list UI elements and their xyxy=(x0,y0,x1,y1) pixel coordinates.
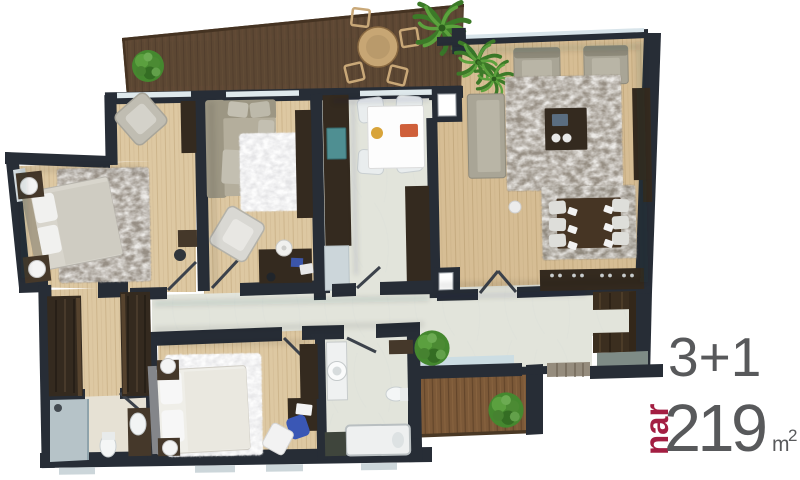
svg-text:219: 219 xyxy=(664,392,765,466)
svg-text:2: 2 xyxy=(788,426,797,445)
svg-text:3+1: 3+1 xyxy=(668,326,761,388)
svg-text:m: m xyxy=(772,433,790,456)
